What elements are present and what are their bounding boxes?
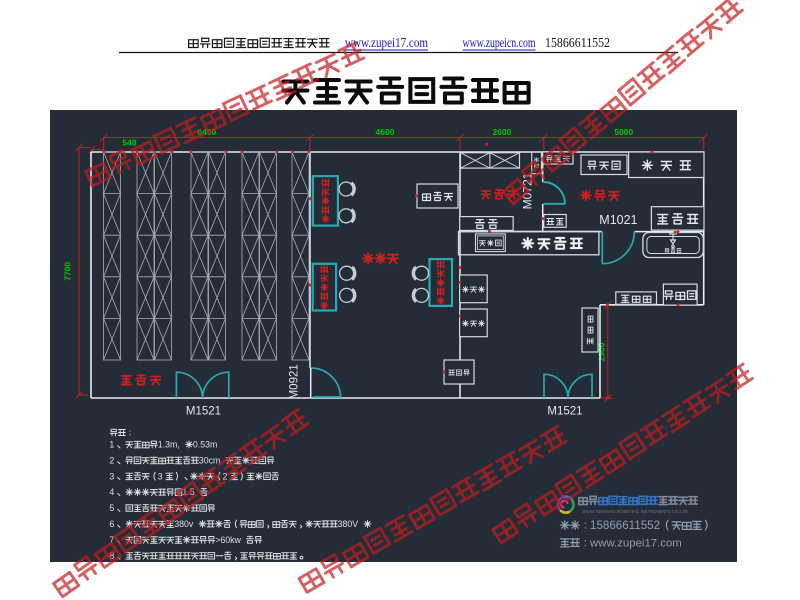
svg-text:M1521: M1521 bbox=[186, 406, 221, 418]
svg-text:www.zupeicn.com: www.zupeicn.com bbox=[463, 35, 536, 50]
svg-text:2: 2 bbox=[223, 471, 228, 481]
svg-text:M1521: M1521 bbox=[547, 406, 582, 418]
svg-text:2600: 2600 bbox=[492, 127, 511, 137]
svg-text:6: 6 bbox=[109, 519, 114, 529]
svg-text:5000: 5000 bbox=[614, 127, 633, 137]
svg-text:3: 3 bbox=[109, 471, 114, 481]
svg-text:30cm: 30cm bbox=[199, 455, 221, 465]
svg-text:JINAN TENGHAO SCIENTIFIC INSTR: JINAN TENGHAO SCIENTIFIC INSTRUMENTS CO.… bbox=[582, 509, 689, 514]
svg-text:548: 548 bbox=[122, 137, 136, 147]
svg-text:>60kw: >60kw bbox=[215, 535, 241, 545]
svg-text:7700: 7700 bbox=[63, 262, 73, 281]
svg-text:www.zupei17.com: www.zupei17.com bbox=[589, 538, 682, 550]
svg-text:1: 1 bbox=[109, 440, 114, 450]
svg-text:2: 2 bbox=[109, 455, 114, 465]
svg-text:380V: 380V bbox=[338, 519, 359, 529]
svg-text:0.53m: 0.53m bbox=[193, 440, 217, 450]
svg-text:4600: 4600 bbox=[376, 127, 395, 137]
svg-text:M0921: M0921 bbox=[289, 364, 301, 399]
svg-text:380v: 380v bbox=[174, 519, 194, 529]
svg-text:15866611552: 15866611552 bbox=[545, 35, 610, 50]
svg-text:1.3m,: 1.3m, bbox=[158, 440, 180, 450]
svg-text:3: 3 bbox=[158, 471, 163, 481]
svg-text:5: 5 bbox=[109, 503, 114, 513]
svg-text:M1021: M1021 bbox=[599, 213, 637, 227]
svg-text:4: 4 bbox=[109, 487, 114, 497]
svg-text:15866611552: 15866611552 bbox=[590, 519, 660, 532]
